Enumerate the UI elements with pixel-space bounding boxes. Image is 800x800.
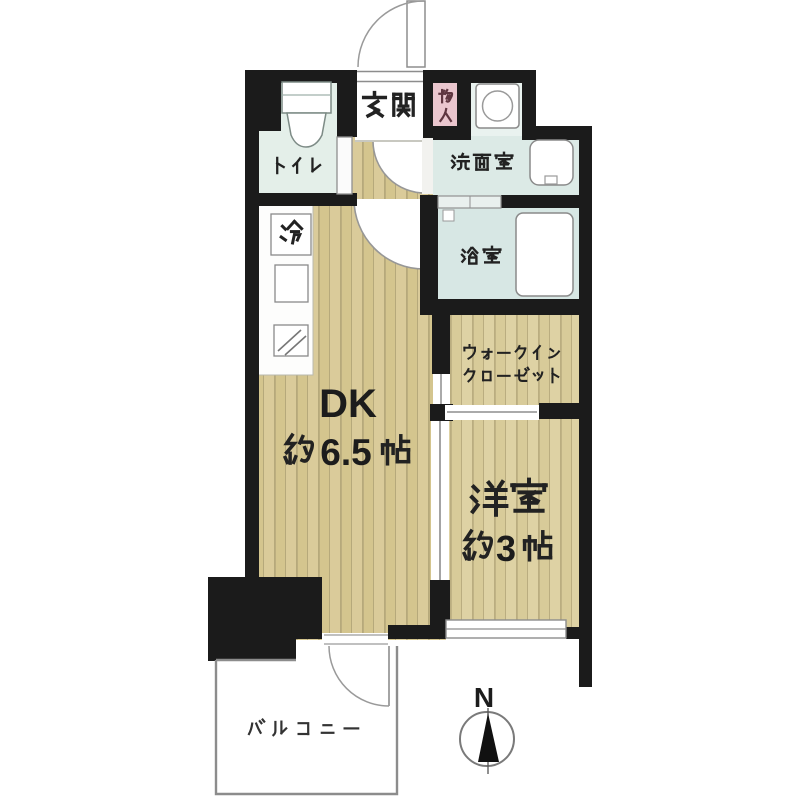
svg-text:DK: DK (319, 382, 377, 426)
svg-text:N: N (474, 682, 494, 713)
svg-text:6.5: 6.5 (320, 432, 371, 473)
svg-text:3: 3 (496, 528, 516, 569)
